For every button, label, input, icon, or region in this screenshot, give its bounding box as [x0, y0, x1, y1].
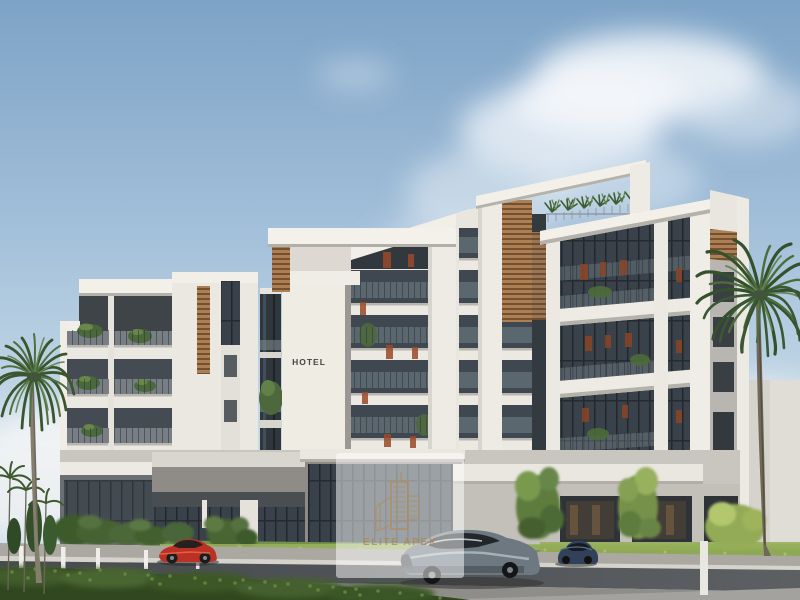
svg-text:ELITE APEX: ELITE APEX: [363, 537, 437, 548]
svg-text:HOTEL: HOTEL: [292, 357, 326, 367]
